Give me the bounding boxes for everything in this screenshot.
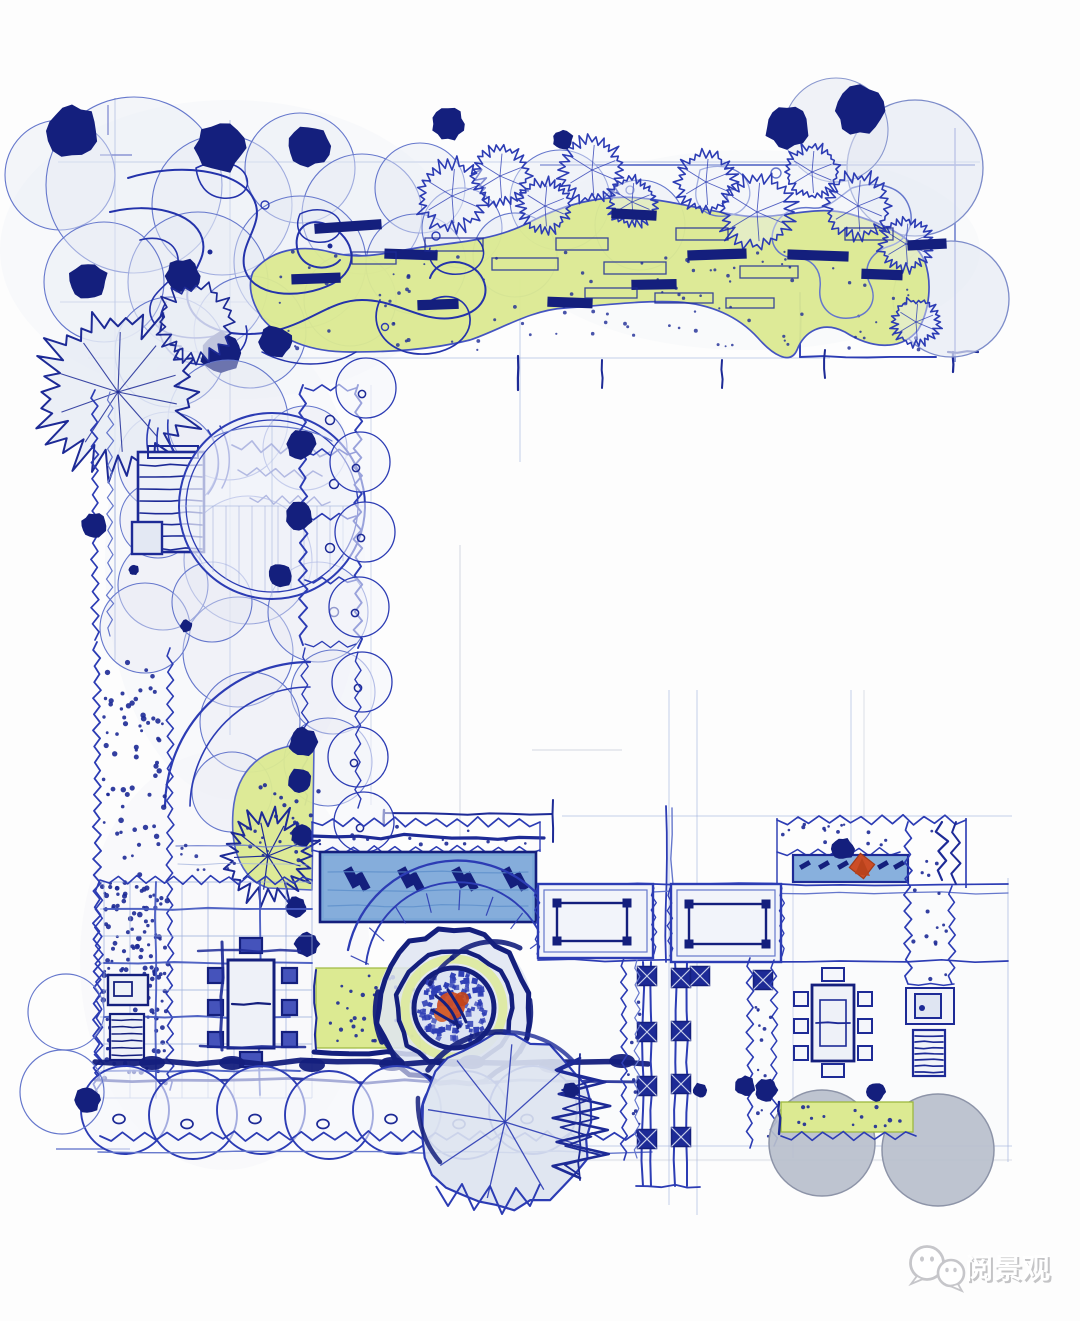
svg-text:阅景观: 阅景观 <box>965 1253 1051 1284</box>
